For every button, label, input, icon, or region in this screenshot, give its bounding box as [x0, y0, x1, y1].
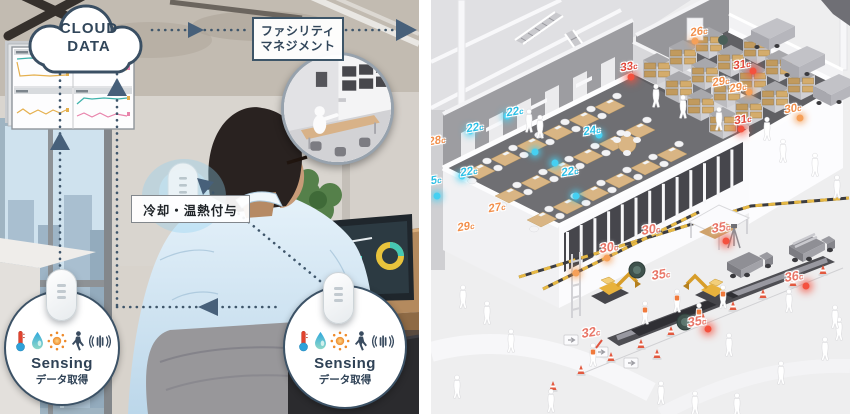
- sensing-subtitle: データ取得: [36, 372, 89, 387]
- vibration-icon: [372, 331, 394, 352]
- arrow-right-icon: [188, 22, 204, 38]
- sun-icon: [330, 331, 350, 351]
- sensor-icons-row: [13, 329, 111, 353]
- droplet-icon: [30, 331, 45, 351]
- isometric-facility-illustration: [431, 0, 850, 414]
- facility-management-label: ファシリティ マネジメント: [252, 17, 344, 61]
- thermometer-icon: [13, 330, 28, 352]
- facility-room-inset: [281, 52, 394, 165]
- facility-label-line1: ファシリティ: [254, 24, 342, 39]
- vibration-icon: [89, 331, 111, 352]
- facility-label-line2: マネジメント: [254, 39, 342, 54]
- cloud-data-badge: CLOUD DATA: [20, 4, 158, 82]
- arrow-to-device-icon: [197, 178, 214, 195]
- cloud-data-line1: CLOUD: [20, 20, 158, 38]
- control-room-illustration: [284, 55, 391, 162]
- person-icon: [352, 331, 370, 352]
- wearable-device-left: [46, 269, 77, 321]
- screenshot-stage: CLOUD DATA: [0, 0, 850, 414]
- droplet-icon: [313, 331, 328, 351]
- sensing-subtitle: データ取得: [319, 372, 372, 387]
- sensing-title: Sensing: [314, 355, 376, 372]
- arrow-up-icon: [50, 132, 70, 150]
- sensing-title: Sensing: [31, 355, 93, 372]
- right-iso-panel: 22c22c24c22c25c22c28c27c29c26c33c31c29c2…: [431, 0, 850, 414]
- arrow-right-large-icon: [396, 19, 417, 41]
- wearable-device-right: [323, 272, 354, 324]
- cooling-heating-label: 冷却・温熱付与: [131, 195, 250, 223]
- arrow-left-icon: [198, 298, 218, 316]
- person-icon: [69, 331, 87, 352]
- left-photo-panel: CLOUD DATA: [0, 0, 419, 414]
- sun-icon: [47, 331, 67, 351]
- sensor-icons-row: [296, 329, 394, 353]
- cloud-data-line2: DATA: [20, 38, 158, 56]
- thermometer-icon: [296, 330, 311, 352]
